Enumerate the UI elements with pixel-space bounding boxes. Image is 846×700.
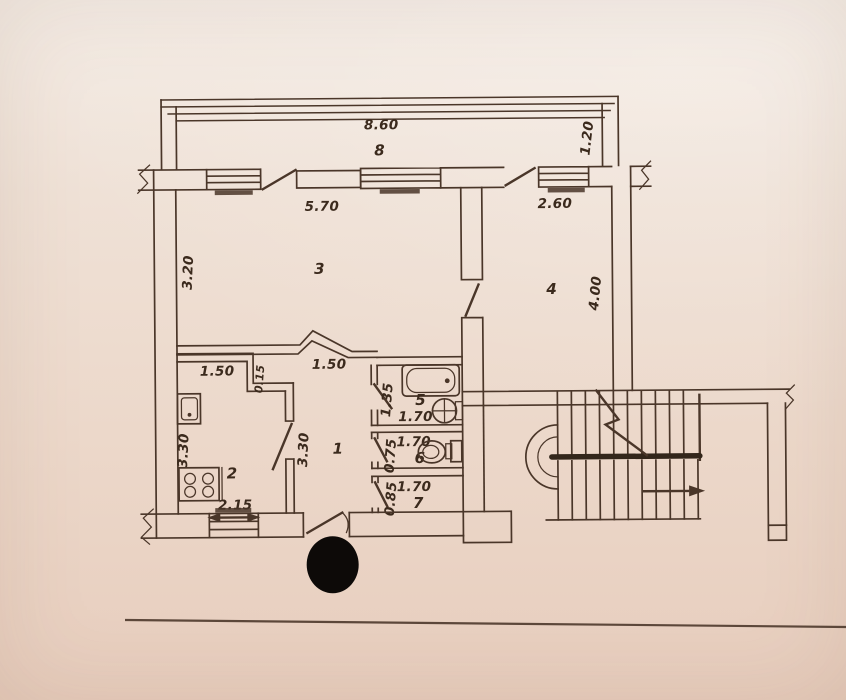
balcony: 8.60 8 1.20 (161, 96, 619, 169)
dim-room4-width: 2.60 (538, 196, 573, 212)
dim-living-depth: 3.20 (180, 255, 198, 290)
window (361, 168, 441, 189)
balcony-door-leaf-2 (506, 168, 535, 185)
window (207, 169, 261, 189)
dim-balcony-length: 8.60 (364, 117, 399, 133)
entrance-door (307, 513, 348, 533)
living-room: 5.70 3.20 3 (176, 198, 377, 359)
bathroom: 1.35 5 1.70 (378, 365, 463, 426)
room-number-kitchen: 2 (227, 464, 238, 482)
room-number-hall: 1 (332, 440, 343, 458)
window (539, 167, 589, 187)
washbasin-icon (432, 399, 462, 423)
dim-kitchen-depth: 3.30 (175, 433, 193, 468)
dim-kitchen-width: 1.50 (200, 363, 235, 379)
dim-hall-width: 1.50 (312, 357, 347, 373)
stair-treads-upper (557, 391, 700, 461)
dim-room4-depth: 4.00 (586, 275, 605, 312)
stove-icon (179, 468, 222, 501)
sink-icon (177, 394, 200, 424)
wall-foot (463, 511, 511, 542)
floor-plan: 8.60 8 1.20 (0, 0, 846, 700)
hallway: 1.50 3.30 1 (294, 357, 347, 468)
stair-direction-arrow (644, 485, 705, 496)
dim-wc-depth: 0.75 (382, 438, 401, 474)
dim-pantry-width: 1.70 (397, 479, 432, 495)
marker-dot (306, 536, 358, 593)
room4-door-leaf (465, 285, 478, 316)
radiator (215, 508, 251, 513)
staircase (483, 389, 786, 542)
stair-break-line (596, 390, 647, 455)
room-number-bath: 5 (415, 391, 426, 409)
room-number-pantry: 7 (413, 494, 424, 512)
baseline (125, 620, 846, 627)
floor-plan-photo: 8.60 8 1.20 (0, 0, 846, 700)
stair-landing-stringer (552, 456, 700, 457)
balcony-door-panel (297, 170, 361, 188)
kitchen-door-leaf (273, 424, 292, 469)
dim-bath-depth: 1.35 (378, 382, 397, 418)
room-number-4: 4 (545, 280, 557, 298)
balcony-door-leaf (263, 170, 296, 189)
top-wall (138, 161, 651, 196)
kitchen: 1.50 0.15 3.30 2 2.15 (174, 353, 294, 522)
bathtub-icon (402, 365, 459, 396)
dim-bath-width: 1.70 (398, 409, 433, 425)
dim-living-width: 5.70 (305, 199, 340, 215)
dim-balcony-depth: 1.20 (577, 120, 597, 156)
dim-hall-depth: 3.30 (295, 432, 313, 467)
room-number-living: 3 (314, 260, 325, 278)
kitchen-window (209, 508, 258, 538)
room-number-balcony: 8 (374, 141, 385, 159)
dim-kitchen-stub: 0.15 (252, 364, 267, 393)
stairwell-right-wall (767, 403, 786, 540)
